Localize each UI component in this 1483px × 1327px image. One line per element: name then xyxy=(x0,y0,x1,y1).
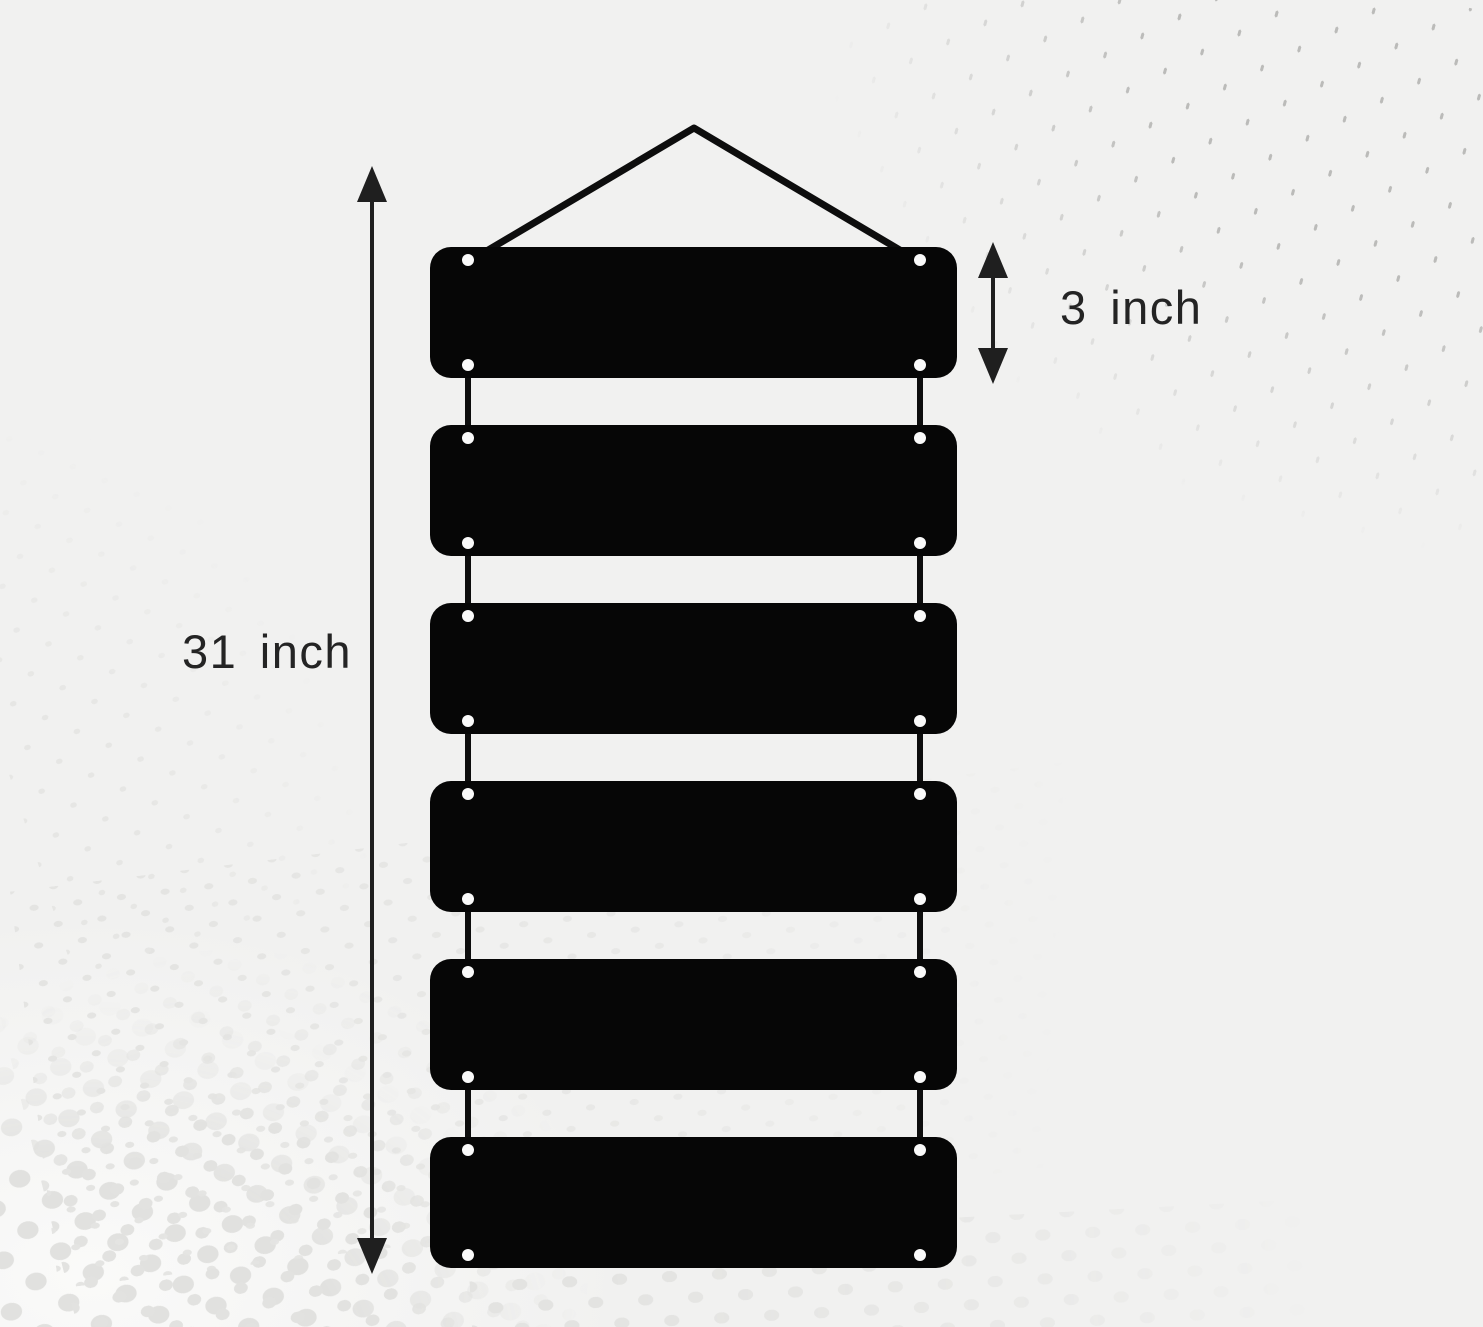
arrow-up-icon xyxy=(978,242,1008,278)
slat-6 xyxy=(430,1137,957,1268)
slat-board xyxy=(430,425,957,556)
dimension-slat-height: 3 inch xyxy=(978,242,1202,384)
slat-hole xyxy=(914,610,926,622)
arrow-up-icon xyxy=(357,166,387,202)
slat-board xyxy=(430,959,957,1090)
slat-hole xyxy=(914,1249,926,1261)
slat-hole xyxy=(914,359,926,371)
slat-hole xyxy=(462,893,474,905)
slat-board xyxy=(430,247,957,378)
slat-hole xyxy=(462,254,474,266)
slat-hole xyxy=(462,715,474,727)
slat-board xyxy=(430,781,957,912)
slat-board xyxy=(430,603,957,734)
arrow-down-icon xyxy=(978,348,1008,384)
slats xyxy=(430,247,957,1268)
slat-hole xyxy=(914,432,926,444)
slat-hole xyxy=(462,1249,474,1261)
slat-hole xyxy=(462,610,474,622)
arrow-down-icon xyxy=(357,1238,387,1274)
slat-height-label: 3 inch xyxy=(1060,281,1202,334)
slat-hole xyxy=(914,537,926,549)
dimension-total-height: 31 inch xyxy=(182,166,387,1274)
slat-hole xyxy=(462,1071,474,1083)
slat-hole xyxy=(914,715,926,727)
slat-hole xyxy=(914,1144,926,1156)
slat-hole xyxy=(914,966,926,978)
slat-5 xyxy=(430,959,957,1090)
slat-board xyxy=(430,1137,957,1268)
hanger-triangle-string xyxy=(468,128,920,262)
diagram-canvas: 31 inch 3 inch xyxy=(0,0,1483,1327)
slat-hole xyxy=(462,1144,474,1156)
slat-1 xyxy=(430,247,957,378)
slat-hole xyxy=(462,788,474,800)
slat-hole xyxy=(914,1071,926,1083)
total-height-label: 31 inch xyxy=(182,625,352,678)
product-diagram: 31 inch 3 inch xyxy=(0,0,1483,1327)
slat-hole xyxy=(914,788,926,800)
slat-hole xyxy=(914,254,926,266)
slat-hole xyxy=(462,537,474,549)
slat-2 xyxy=(430,425,957,556)
slat-3 xyxy=(430,603,957,734)
slat-hole xyxy=(462,432,474,444)
slat-hole xyxy=(914,893,926,905)
slat-hole xyxy=(462,966,474,978)
slat-hole xyxy=(462,359,474,371)
slat-4 xyxy=(430,781,957,912)
